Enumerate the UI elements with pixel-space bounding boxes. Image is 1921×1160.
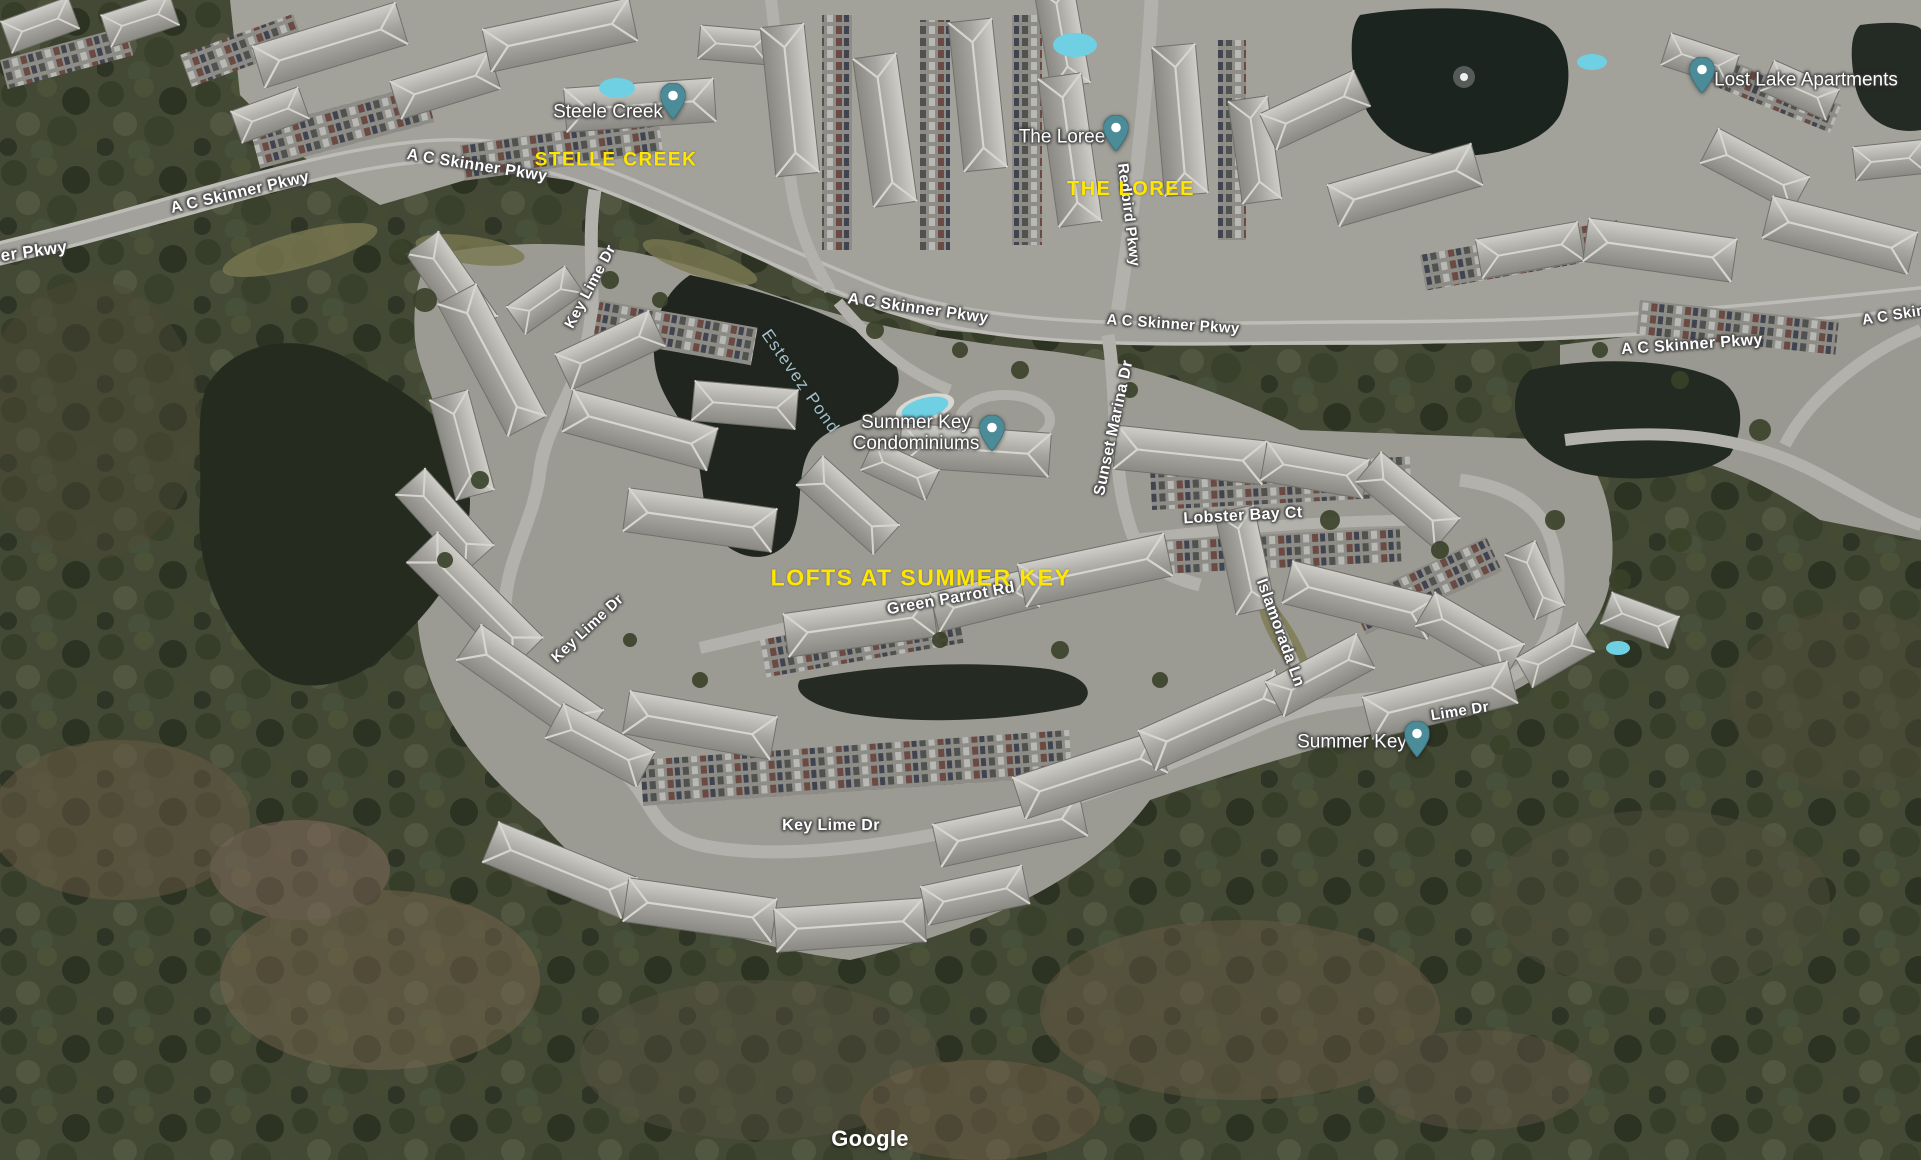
road-label: Key Lime Dr	[549, 592, 627, 667]
road-label: A C Skinner Pkwy	[1621, 331, 1764, 358]
road-label: Lime Dr	[1430, 699, 1491, 724]
road-label: A C Skinner Pkwy	[847, 290, 990, 327]
poi-label[interactable]: Lost Lake Apartments	[1714, 71, 1898, 92]
road-label: Key Lime Dr	[782, 817, 880, 835]
road-label: A C Skin	[1861, 303, 1921, 329]
road-label: Islamorada Ln	[1252, 577, 1307, 690]
map-labels-layer: er PkwyA C Skinner PkwyA C Skinner PkwyA…	[0, 0, 1921, 1160]
satellite-map[interactable]: er PkwyA C Skinner PkwyA C Skinner PkwyA…	[0, 0, 1921, 1160]
annotation-label: THE LOREE	[1067, 178, 1195, 200]
poi-label[interactable]: Summer KeyCondominiums	[853, 413, 980, 455]
poi-pin-icon[interactable]	[661, 83, 686, 124]
road-label: Lobster Bay Ct	[1183, 504, 1303, 528]
road-label: A C Skinner Pkwy	[406, 146, 549, 186]
poi-pin-icon[interactable]	[1104, 115, 1129, 156]
poi-label[interactable]: Summer Key	[1297, 733, 1407, 754]
poi-pin-icon[interactable]	[980, 415, 1005, 456]
road-label: Key Lime Dr	[562, 243, 620, 332]
annotation-label: LOFTS AT SUMMER KEY	[771, 565, 1072, 590]
poi-pin-icon[interactable]	[1405, 721, 1430, 762]
road-label: er Pkwy	[0, 238, 69, 266]
poi-label[interactable]: The Loree	[1019, 128, 1106, 149]
poi-pin-icon[interactable]	[1690, 57, 1715, 98]
annotation-label: STELLE CREEK	[535, 151, 698, 172]
road-label: A C Skinner Pkwy	[1106, 312, 1240, 338]
poi-label[interactable]: Steele Creek	[553, 103, 663, 124]
google-watermark: Google	[831, 1126, 909, 1152]
road-label: A C Skinner Pkwy	[169, 168, 311, 217]
road-label: Sunset Marina Dr	[1091, 359, 1137, 498]
water-label: Estevez Pond	[757, 326, 843, 437]
